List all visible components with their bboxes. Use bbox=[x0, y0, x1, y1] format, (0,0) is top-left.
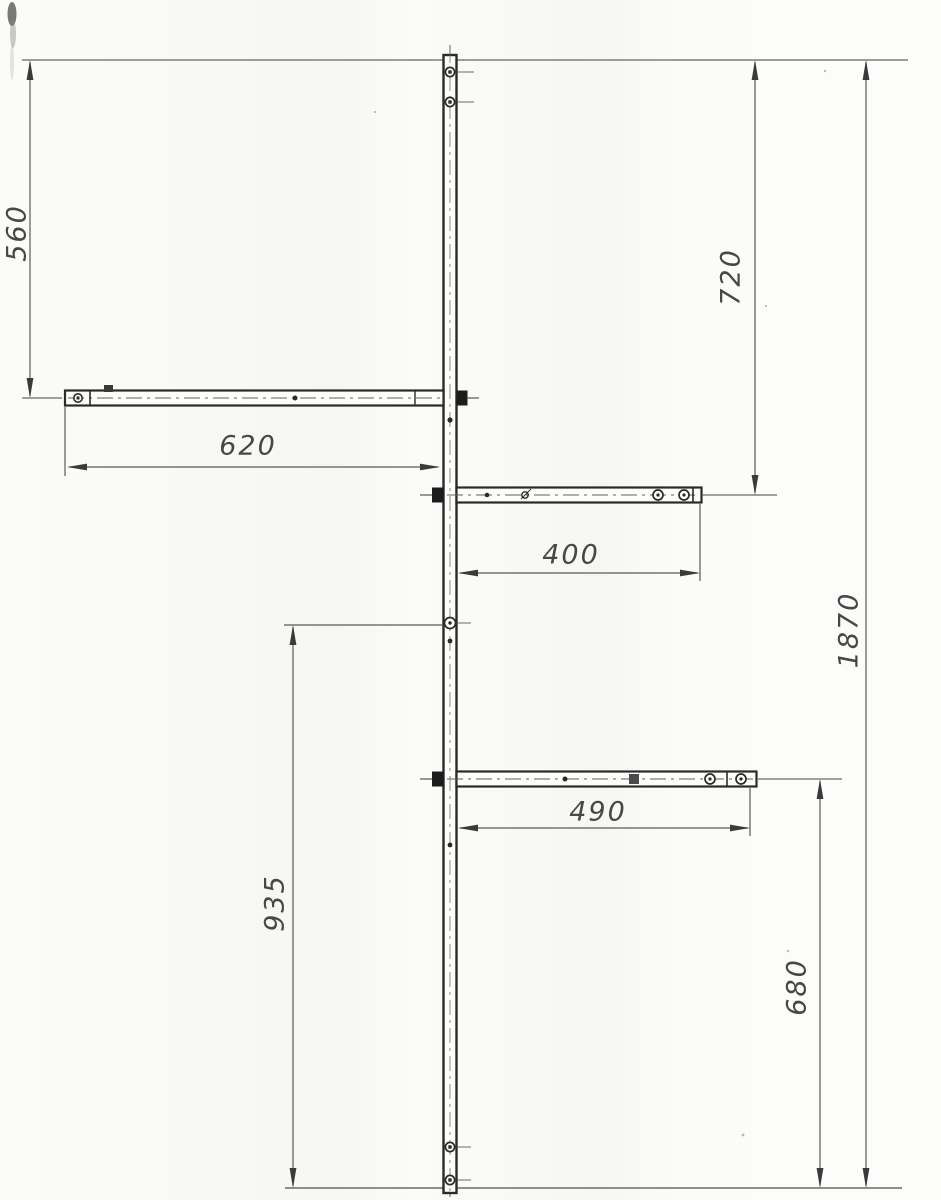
arrow-down-1870 bbox=[863, 1168, 870, 1188]
drawing-sheet: 560 720 620 400 1870 935 490 680 bbox=[0, 0, 941, 1200]
lower-right-arm-clamp bbox=[432, 772, 444, 787]
arrow-up-680 bbox=[817, 779, 824, 799]
arrow-right-490 bbox=[730, 825, 750, 832]
dim-935-line bbox=[284, 625, 443, 1188]
upper-right-arm bbox=[420, 488, 777, 503]
arrow-left-490 bbox=[458, 825, 478, 832]
arrow-down-935 bbox=[290, 1168, 297, 1188]
arrow-down-720 bbox=[752, 475, 759, 495]
dim-400-line bbox=[458, 504, 700, 581]
left-arm bbox=[22, 385, 479, 406]
arrow-down-680 bbox=[817, 1168, 824, 1188]
dim-680-line bbox=[817, 779, 824, 1188]
dim-720-line bbox=[752, 60, 759, 495]
arrow-up-1870 bbox=[863, 60, 870, 80]
arrow-left-620 bbox=[67, 464, 87, 471]
arrow-up-935 bbox=[290, 625, 297, 645]
arrow-left-400 bbox=[458, 570, 478, 577]
arrow-right-400 bbox=[680, 570, 700, 577]
scan-smudge bbox=[8, 2, 17, 80]
lower-right-arm-block bbox=[629, 774, 639, 784]
dim-560-line bbox=[27, 60, 34, 398]
left-arm-tab bbox=[104, 385, 113, 392]
scan-specks bbox=[374, 70, 826, 1137]
drawing-linework bbox=[0, 0, 941, 1200]
arrow-right-620 bbox=[420, 464, 440, 471]
left-arm-clamp bbox=[457, 391, 468, 406]
arrow-up-720 bbox=[752, 60, 759, 80]
arrow-up-560 bbox=[27, 60, 34, 80]
upper-right-arm-clamp bbox=[432, 488, 444, 503]
lower-right-arm bbox=[420, 772, 842, 787]
dim-620-line bbox=[65, 407, 440, 476]
dim-1870-line bbox=[863, 60, 870, 1188]
dim-490-line bbox=[458, 788, 750, 836]
arrow-down-560 bbox=[27, 378, 34, 398]
mast bbox=[444, 45, 475, 1197]
